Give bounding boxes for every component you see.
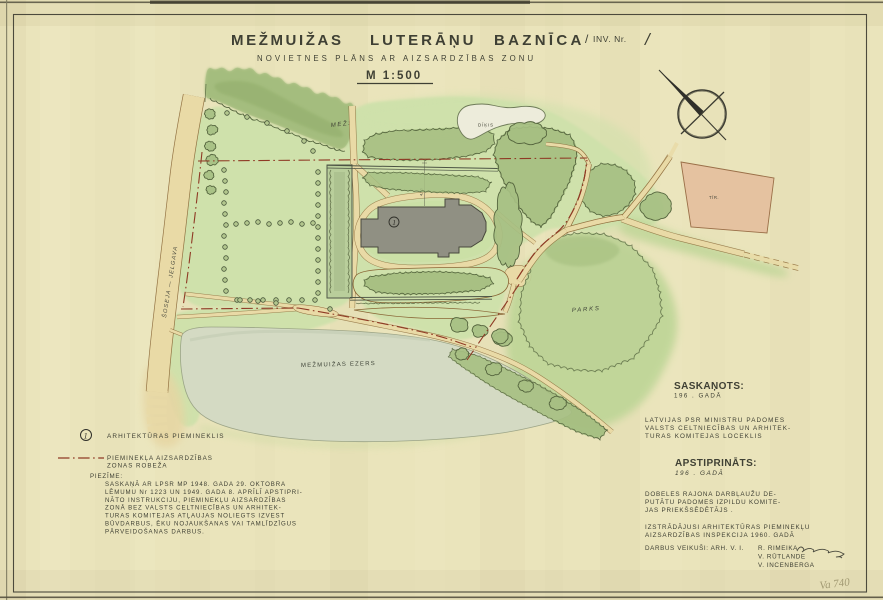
svg-text:TURAS KOMITEJAS LOCEKLIS: TURAS KOMITEJAS LOCEKLIS (645, 433, 763, 440)
svg-text:TĪR.: TĪR. (709, 195, 719, 200)
svg-text:LATVIJAS PSR MINISTRU PADO: LATVIJAS PSR MINISTRU PADOMES (645, 417, 785, 424)
svg-text:196 . GADĀ: 196 . GADĀ (674, 393, 722, 400)
svg-text:DOBELES RAJONA DARBĻAUŽU DE: DOBELES RAJONA DARBĻAUŽU DE- (645, 489, 777, 498)
svg-text:APSTIPRINĀTS:: APSTIPRINĀTS: (675, 457, 757, 469)
svg-text:INV. Nr.: INV. Nr. (593, 34, 627, 44)
svg-text:DĪĶIS: DĪĶIS (478, 123, 494, 128)
svg-text:LUTERĀŅU: LUTERĀŅU (370, 32, 477, 49)
svg-text:BAZNĪCA: BAZNĪCA (494, 32, 585, 49)
svg-text:MEŽMUIŽAS: MEŽMUIŽAS (231, 31, 344, 49)
svg-text:JAS PRIEKŠSĒDĒTĀJS .: JAS PRIEKŠSĒDĒTĀJS . (645, 505, 733, 514)
svg-text:BŪVDARBUS, ĒKU NOJAUKŠANAS: BŪVDARBUS, ĒKU NOJAUKŠANAS VAI TAMLĪDZĪG… (105, 521, 297, 528)
svg-text:PIEZĪME:: PIEZĪME: (90, 473, 123, 480)
svg-text:V. INCENBERGA: V. INCENBERGA (758, 562, 815, 569)
svg-text:1: 1 (392, 218, 396, 227)
svg-text:PUTĀTU PADOMES IZPILDU KOMI: PUTĀTU PADOMES IZPILDU KOMITE- (645, 498, 781, 506)
svg-text:VALSTS CELTNIECĪBAS UN ARHI: VALSTS CELTNIECĪBAS UN ARHITEK- (645, 424, 791, 432)
svg-text:DARBUS VEIKUŠI: ARH. V. I.: DARBUS VEIKUŠI: ARH. V. I. (645, 543, 744, 552)
svg-text:TURAS KOMITEJAS ATĻAUJAS NO: TURAS KOMITEJAS ATĻAUJAS NOLIEGTS IZVEST (105, 513, 285, 520)
svg-text:ARHITEKTŪRAS PIEMINEKLIS: ARHITEKTŪRAS PIEMINEKLIS (107, 432, 225, 440)
svg-text:SASKAŅOTS:: SASKAŅOTS: (674, 381, 744, 392)
svg-text:196 . GADĀ: 196 . GADĀ (675, 469, 724, 477)
svg-text:ZONĀ BEZ VALSTS CELTNIECĪBA: ZONĀ BEZ VALSTS CELTNIECĪBAS UN ARHITEK- (105, 505, 282, 512)
svg-text:R. RIMEIKA: R. RIMEIKA (758, 545, 798, 552)
svg-text:LĒMUMU Nr 1223 UN 1949. GA: LĒMUMU Nr 1223 UN 1949. GADA 8. APRĪLĪ A… (105, 489, 303, 496)
svg-text:IZSTRĀDĀJUSI ARHITEKTŪRAS PI: IZSTRĀDĀJUSI ARHITEKTŪRAS PIEMINEKĻU (645, 523, 810, 531)
svg-text:AIZSARDZĪBAS INSPEKCIJA 196: AIZSARDZĪBAS INSPEKCIJA 1960. GADĀ (645, 531, 795, 539)
svg-text:SASKAŅĀ AR LPSR MP 1948.: SASKAŅĀ AR LPSR MP 1948. GADA 29. OKTOBR… (105, 481, 286, 488)
svg-text:ZONAS ROBEŽA: ZONAS ROBEŽA (107, 462, 167, 470)
svg-text:NOVIETNES PLĀNS AR AIZSARDZ: NOVIETNES PLĀNS AR AIZSARDZĪBAS ZONU (257, 54, 536, 63)
svg-text:1: 1 (84, 431, 88, 440)
svg-text:M 1:500: M 1:500 (366, 70, 422, 82)
svg-text:NĀTO INSTRUKCIJU, PIEMINEKĻU: NĀTO INSTRUKCIJU, PIEMINEKĻU AIZSARDZĪBA… (105, 497, 286, 504)
svg-text:PIEMINEKĻA AIZSARDZĪBAS: PIEMINEKĻA AIZSARDZĪBAS (107, 455, 213, 462)
svg-text:PĀRVEIDOŠANAS DARBUS.: PĀRVEIDOŠANAS DARBUS. (105, 528, 205, 535)
svg-text:V. RŪTLANDE: V. RŪTLANDE (758, 553, 806, 561)
